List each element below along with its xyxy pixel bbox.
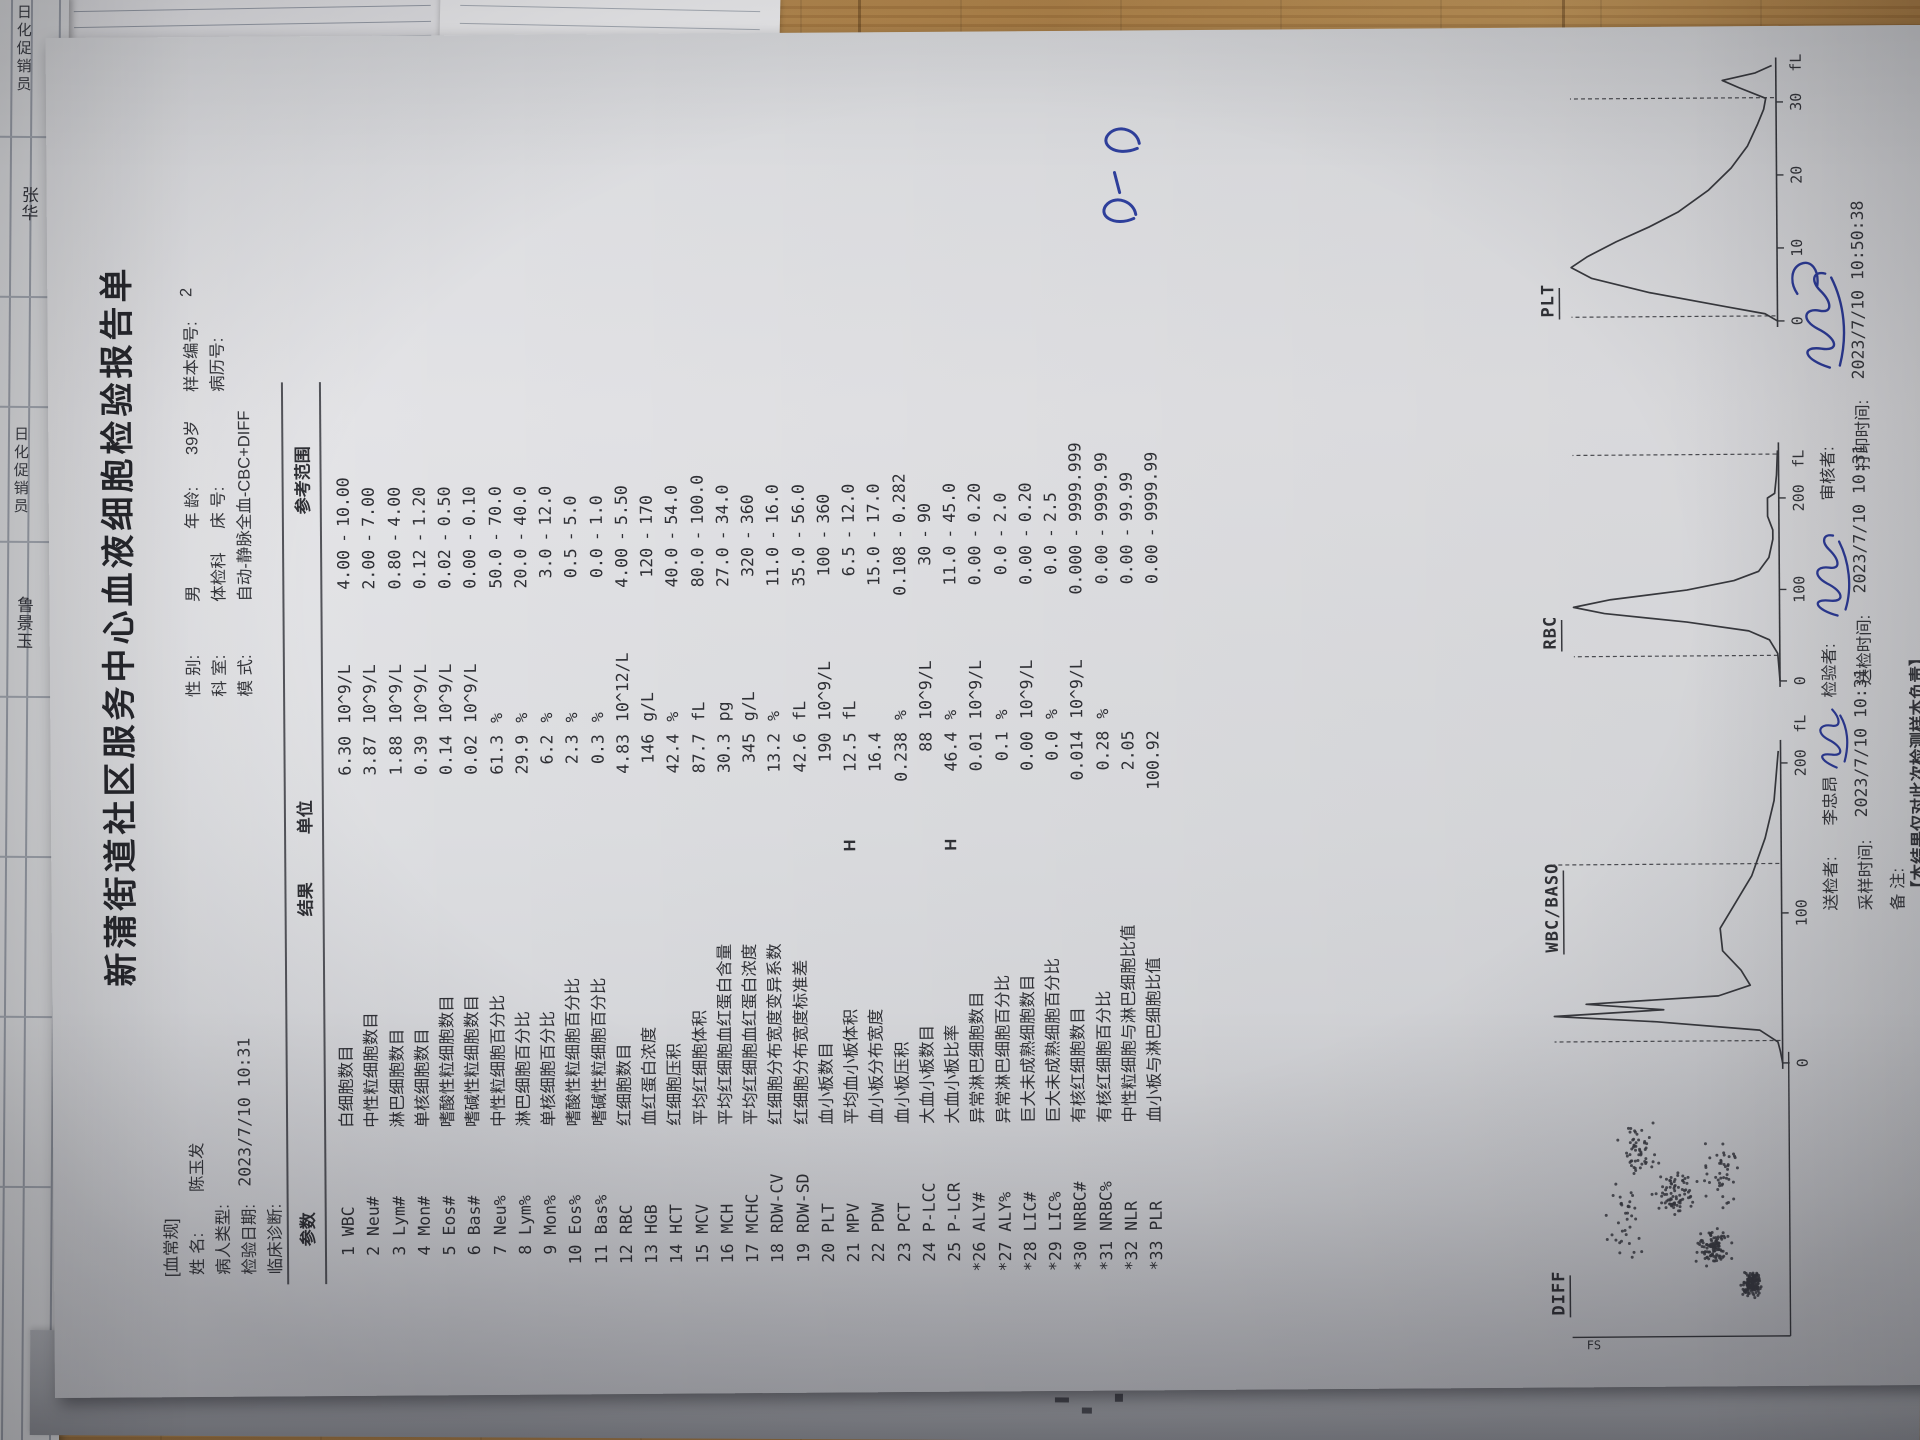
section-tag: [血常规] [158,1218,182,1277]
mode: 自动-静脉全血-CBC+DIFF [230,410,255,601]
range-low: 20.0 [508,549,534,697]
range-low: 0.0 [1038,545,1064,693]
range-separator: - [937,528,962,540]
param-name: 平均血小板体积 [839,1009,865,1125]
result-unit: fL [686,702,711,722]
param-name: 淋巴细胞百分比 [511,1011,537,1127]
results-table: 1 WBC 白细胞数目 6.30 10^9/L 4.00 - 10.00 2 N… [330,330,1171,1396]
result-unit: % [888,710,913,720]
result-value: 100.92 [1140,730,1166,838]
range-separator: - [482,531,507,543]
result-value: 6.2 [534,734,560,842]
diff-scattergram: DIFF FS [1543,1046,1813,1360]
range-low: 4.00 [331,550,357,698]
range-low: 30 [912,546,938,694]
param-name: 血小板与淋巴细胞比值 [1142,957,1168,1122]
range-high: 0.50 [432,486,458,526]
result-unit: % [989,709,1014,719]
range-high: 45.0 [937,483,963,523]
param-name: 血小板数目 [814,1042,840,1125]
patient-sex: 男 [179,585,203,602]
range-high: 34.0 [709,484,735,524]
range-high: 7.00 [356,487,382,527]
range-high: 0.10 [457,486,483,526]
range-high: 2.5 [1038,492,1063,522]
print-fragment [1082,1408,1092,1414]
result-unit: % [660,712,685,722]
param-name: 血小板分布宽度 [865,1009,891,1125]
range-high: 360 [735,494,760,524]
param-code: 25 P-LCR [942,1182,968,1272]
range-high: 4.00 [381,487,407,527]
result-unit: fL [837,700,862,720]
range-low: 11.0 [937,546,963,694]
param-code: 19 RDW-SD [790,1173,816,1273]
range-high: 54.0 [659,485,685,525]
param-code: *26 ALY# [967,1192,993,1272]
range-high: 360 [810,494,835,524]
bg-form-text: 日化促销员 [12,4,34,94]
result-value: 2.05 [1115,730,1141,838]
param-name: 血小板压积 [890,1041,916,1124]
result-value: 0.28 [1090,731,1116,839]
wbc-baso-label: WBC/BASO [1542,863,1563,953]
range-separator: - [457,531,482,543]
range-separator: - [861,528,886,540]
param-name: 白细胞数目 [335,1045,361,1128]
result-value: 0.14 [433,735,459,843]
range-separator: - [331,532,356,544]
photo-scene: 日化促销员 张华 日化促销员 鲁景玉 新蒲街道社区服务中心血液细胞检验报告单 [… [0,0,1920,1440]
result-value: 0.0 [1039,731,1065,839]
svg-text:fL: fL [1791,715,1809,733]
range-low: 4.00 [609,548,635,696]
range-separator: - [785,529,810,541]
range-low: 3.0 [533,548,559,696]
bg-form-handwriting: 鲁景玉 [10,596,36,651]
send-time-label: 送检时间: [1851,615,1875,686]
range-high: 170 [634,495,659,525]
range-low: 100 [811,547,837,695]
param-name: 嗜酸性粒细胞百分比 [561,978,587,1127]
svg-text:0: 0 [1791,676,1809,685]
param-code: *27 ALY% [992,1192,1018,1272]
svg-text:200: 200 [1792,749,1810,776]
result-unit: g/L [635,692,660,722]
rbc-histogram: RBC 0100200fL [1534,423,1828,710]
result-value: 46.4 [938,732,964,840]
param-code: 8 Lym% [512,1195,538,1275]
result-value: 190 [812,733,838,841]
param-name: 有核红细胞数目 [1067,1007,1093,1123]
param-name: 中性粒细胞数目 [360,1012,386,1128]
result-value: 2.3 [560,734,586,842]
param-code: 13 HGB [639,1204,665,1274]
param-name: 平均红细胞血红蛋白含量 [713,944,740,1126]
range-high: 70.0 [482,486,508,526]
result-unit: pg [711,701,736,721]
result-value: 12.5 [837,732,863,840]
param-name: 平均红细胞血红蛋白浓度 [738,944,765,1126]
param-code: 20 PLT [815,1203,841,1273]
result-unit: % [559,712,584,722]
range-low: 0.12 [407,549,433,697]
param-code: *31 NRBC% [1093,1181,1119,1271]
result-unit: g/L [736,691,761,721]
range-high: 1.20 [406,487,432,527]
range-separator: - [659,530,684,542]
range-high: 0.20 [1012,482,1038,522]
param-code: 7 Neu% [487,1195,513,1275]
print-fragment [1115,1394,1123,1402]
range-separator: - [609,530,634,542]
sample-time: 2023/7/10 10:31 [1851,668,1871,817]
range-low: 27.0 [710,547,736,695]
reviewer-label: 审核者: [1814,446,1838,500]
param-code: 3 Lym# [386,1196,412,1276]
param-code: 1 WBC [336,1206,362,1276]
range-high: 1.0 [583,495,608,525]
range-separator: - [836,528,861,540]
param-name: 巨大未成熟细胞百分比 [1041,958,1067,1123]
range-separator: - [508,531,533,543]
header-range: 参考范围 [288,446,313,514]
result-value: 88 [913,732,939,840]
result-value: 87.7 [686,733,712,841]
range-separator: - [432,531,457,543]
svg-text:fL: fL [1789,450,1807,468]
mode-label: 模 式: [232,654,256,696]
param-code: 6 Bas# [462,1195,488,1275]
range-separator: - [634,530,659,542]
param-code: *33 PLR [1144,1201,1170,1271]
range-separator: - [407,531,432,543]
sample-no-label: 样本编号: [177,321,201,392]
result-unit: % [1090,709,1115,719]
result-unit: % [938,710,963,720]
range-high: 90 [912,503,937,523]
header-param: 参数 [294,1212,319,1246]
range-high: 5.0 [558,495,583,525]
range-separator: - [1114,526,1139,538]
result-value: 0.3 [585,734,611,842]
table-rule-header [319,382,327,1284]
range-high: 0.282 [886,473,912,523]
param-name: 大血小板数目 [915,1025,941,1124]
range-high: 12.0 [533,486,559,526]
header-unit: 单位 [291,800,316,834]
param-name: 红细胞压积 [663,1043,689,1126]
range-high: 99.99 [1113,472,1139,522]
param-name: 中性粒细胞百分比 [486,995,512,1127]
range-separator: - [583,530,608,542]
range-low: 0.00 [457,549,483,697]
result-value: 0.00 [1014,731,1040,839]
param-code: 2 Neu# [361,1196,387,1276]
range-low: 35.0 [786,547,812,695]
range-separator: - [533,530,558,542]
range-separator: - [735,529,760,541]
sample-no: 2 [177,288,196,297]
sender-name: 李忠昂 [1817,776,1841,826]
range-high: 12.0 [836,484,862,524]
range-high: 100.0 [684,475,710,525]
param-code: 23 PCT [891,1202,917,1272]
bg-form-text: 日化促销员 [9,426,31,516]
result-value: 0.238 [888,732,914,840]
param-code: 18 RDW-CV [765,1174,791,1274]
range-separator: - [684,529,709,541]
age-label: 年 龄: [179,487,203,529]
range-low: 6.5 [836,546,862,694]
print-fragment [1055,1397,1069,1402]
param-code: 5 Eos# [437,1196,463,1276]
param-code: 15 MCV [689,1204,715,1274]
rbc-label: RBC [1541,616,1561,650]
range-high: 5.50 [608,485,634,525]
param-code: 10 Eos% [563,1195,589,1275]
svg-text:fL: fL [1787,54,1805,72]
result-unit: % [761,711,786,721]
param-name: 红细胞分布宽度变异系数 [763,943,790,1125]
param-code: 16 MCH [714,1204,740,1274]
range-separator: - [1013,527,1038,539]
lab-report-sheet: 新蒲街道社区服务中心血液细胞检验报告单 [血常规] 姓 名: 陈玉发 性 别: … [46,25,1920,1398]
range-separator: - [1139,526,1164,538]
name-label: 姓 名: [184,1233,208,1275]
range-low: 0.108 [887,546,913,694]
param-name: 嗜碱性粒细胞百分比 [587,978,613,1127]
param-name: 中性粒细胞与淋巴细胞比值 [1116,924,1143,1122]
result-value: 16.4 [863,732,889,840]
result-value: 345 [736,733,762,841]
range-low: 0.00 [1089,545,1115,693]
range-low: 0.000 [1063,545,1089,693]
reviewer-signature-scribble [1791,212,1852,377]
result-unit: % [484,713,509,723]
param-code: 21 MPV [841,1203,867,1273]
range-low: 320 [735,547,761,695]
range-low: 0.0 [584,548,610,696]
range-separator: - [962,527,987,539]
range-high: 16.0 [760,484,786,524]
param-name: 大血小板比率 [940,1025,966,1124]
param-name: 淋巴细胞数目 [385,1029,411,1128]
result-value: 0.014 [1065,731,1091,839]
tester-signature-scribble [1805,498,1854,623]
param-name: 单核细胞百分比 [536,1011,562,1127]
range-low: 50.0 [483,549,509,697]
range-separator: - [886,528,911,540]
result-unit: % [534,713,559,723]
range-low: 120 [634,548,660,696]
plt-label: PLT [1538,284,1558,318]
fs-axis-label: FS [1587,1338,1602,1352]
range-high: 10.00 [331,477,357,527]
param-code: 9 Mon% [538,1195,564,1275]
param-code: 4 Mon# [411,1196,437,1276]
range-separator: - [811,529,836,541]
param-code: *32 NLR [1118,1201,1144,1271]
param-name: 嗜酸性粒细胞数目 [435,995,461,1127]
result-unit: fL [787,701,812,721]
sender-signature-scribble [1808,663,1851,773]
range-high: 40.0 [507,486,533,526]
param-name: 有核红细胞百分比 [1092,991,1118,1123]
svg-text:20: 20 [1787,166,1805,184]
range-low: 0.0 [988,545,1014,693]
range-separator: - [760,529,785,541]
disclaimer: 【本结果仅对此次检测样本负责】 [1904,649,1920,897]
param-name: 嗜碱性粒细胞数目 [460,995,486,1127]
range-separator: - [381,532,406,544]
result-value: 42.6 [787,733,813,841]
range-low: 11.0 [760,547,786,695]
range-low: 40.0 [659,548,685,696]
plt-histogram: PLT 0102030fL [1532,33,1826,350]
sender-label: 送检者: [1817,856,1841,910]
range-low: 0.00 [1114,544,1140,692]
range-separator: - [1063,527,1088,539]
range-separator: - [1088,527,1113,539]
result-value: 42.4 [661,734,687,842]
svg-text:0: 0 [1794,1058,1812,1067]
param-code: 11 Bas% [588,1195,614,1275]
range-low: 0.00 [962,545,988,693]
result-value: 0.1 [989,731,1015,839]
result-value: 4.83 [610,734,636,842]
report-title: 新蒲街道社区服务中心血液细胞检验报告单 [87,0,145,1306]
mrn-label: 病历号: [204,338,228,392]
patient-name: 陈玉发 [183,1142,207,1192]
param-name: 异常淋巴细胞百分比 [991,975,1017,1124]
param-code: *29 LIC% [1043,1191,1069,1271]
param-name: 巨大未成熟细胞数目 [1016,975,1042,1124]
param-code: *30 NRBC# [1068,1181,1094,1271]
print-time-label: 打印时间: [1849,400,1873,471]
range-separator: - [558,530,583,542]
range-separator: - [987,527,1012,539]
result-unit: % [509,713,534,723]
param-code: 17 MCHC [740,1194,766,1274]
result-value: 61.3 [484,735,510,843]
range-high: 0.20 [962,483,988,523]
param-name: 红细胞分布宽度标准差 [788,960,814,1125]
sex-label: 性 别: [180,655,204,697]
range-low: 0.5 [558,548,584,696]
dept: 体检科 [205,552,229,602]
param-name: 异常淋巴细胞数目 [965,991,991,1123]
result-value: 3.87 [358,736,384,844]
wbc-baso-histogram: WBC/BASO 0100200fL [1536,711,1831,1093]
param-name: 单核细胞数目 [410,1028,436,1127]
bed-label: 床 号: [205,487,229,529]
param-name: 平均红细胞体积 [688,1010,714,1126]
test-date: 2023/7/10 10:31 [234,1038,254,1187]
param-code: 24 P-LCC [916,1182,942,1272]
range-high: 9999.99 [1138,452,1164,522]
patient-age: 39岁 [178,420,202,455]
range-low: 0.02 [432,549,458,697]
result-value: 30.3 [711,733,737,841]
range-low: 2.00 [356,550,382,698]
result-value: 0.01 [964,731,990,839]
param-code: 22 PDW [866,1203,892,1273]
range-high: 17.0 [861,483,887,523]
result-value: 6.30 [332,736,358,844]
range-high: 2.0 [987,492,1012,522]
param-name: 血红蛋白浓度 [637,1027,663,1126]
result-value: 1.88 [383,736,409,844]
result-value: 0.39 [408,735,434,843]
range-separator: - [356,532,381,544]
result-value: 29.9 [509,735,535,843]
range-low: 0.00 [1139,544,1165,692]
range-low: 15.0 [861,546,887,694]
svg-text:30: 30 [1787,93,1805,111]
param-name: 红细胞数目 [612,1043,638,1126]
patient-type-label: 病人类型: [210,1204,234,1275]
range-separator: - [710,529,735,541]
range-low: 0.80 [382,550,408,698]
diff-label: DIFF [1549,1270,1569,1315]
diagnosis-label: 临床诊断: [262,1204,286,1275]
handwritten-mark [1081,110,1157,241]
param-code: 12 RBC [613,1204,639,1274]
range-separator: - [1038,527,1063,539]
bg-form-handwriting: 张华 [15,186,41,223]
result-unit: % [585,712,610,722]
sample-time-label: 采样时间: [1852,840,1876,911]
range-high: 56.0 [785,484,811,524]
range-high: 9999.99 [1088,452,1114,522]
test-date-label: 检验日期: [236,1204,260,1275]
dept-label: 科 室: [206,655,230,697]
result-value: 0.02 [459,735,485,843]
range-high: 9999.999 [1063,442,1089,522]
result-unit: % [1039,709,1064,719]
param-code: 14 HCT [664,1204,690,1274]
range-low: 80.0 [685,547,711,695]
header-result: 结果 [291,882,316,916]
result-value: 13.2 [762,733,788,841]
result-value: 146 [635,734,661,842]
range-low: 0.00 [1013,545,1039,693]
param-code: *28 LIC# [1017,1192,1043,1272]
svg-text:100: 100 [1793,899,1811,926]
range-separator: - [912,528,937,540]
